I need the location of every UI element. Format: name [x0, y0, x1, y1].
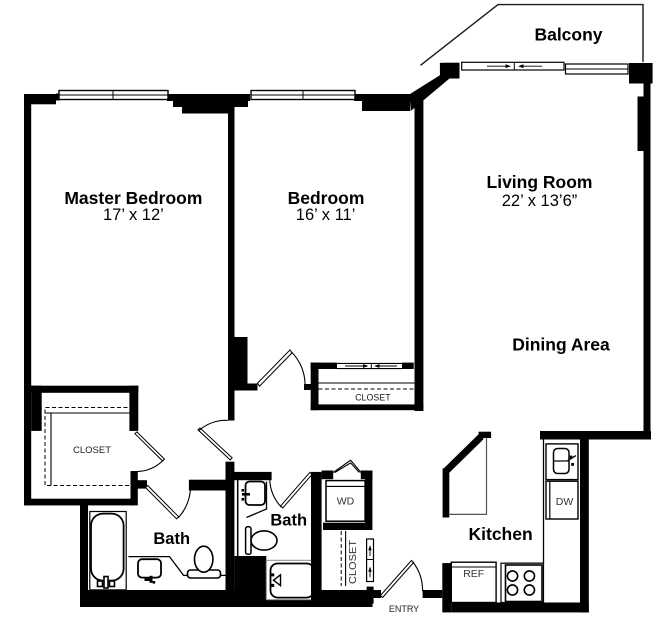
svg-text:ENTRY: ENTRY	[389, 604, 419, 614]
svg-text:16’ x 11’: 16’ x 11’	[296, 206, 356, 224]
svg-text:Bath: Bath	[270, 511, 307, 529]
svg-text:17’ x 12’: 17’ x 12’	[103, 206, 164, 224]
svg-text:DW: DW	[556, 496, 574, 508]
svg-text:CLOSET: CLOSET	[355, 393, 391, 403]
svg-text:WD: WD	[337, 496, 355, 508]
svg-text:CLOSET: CLOSET	[73, 445, 112, 455]
svg-text:Balcony: Balcony	[534, 25, 602, 45]
svg-text:CLOSET: CLOSET	[347, 539, 359, 584]
svg-text:REF: REF	[463, 568, 484, 580]
svg-text:Living Room: Living Room	[487, 172, 593, 192]
svg-text:22’ x 13’6”: 22’ x 13’6”	[502, 192, 578, 210]
svg-text:Kitchen: Kitchen	[469, 524, 533, 544]
svg-text:Dining Area: Dining Area	[512, 335, 610, 355]
svg-text:Bath: Bath	[153, 530, 190, 548]
